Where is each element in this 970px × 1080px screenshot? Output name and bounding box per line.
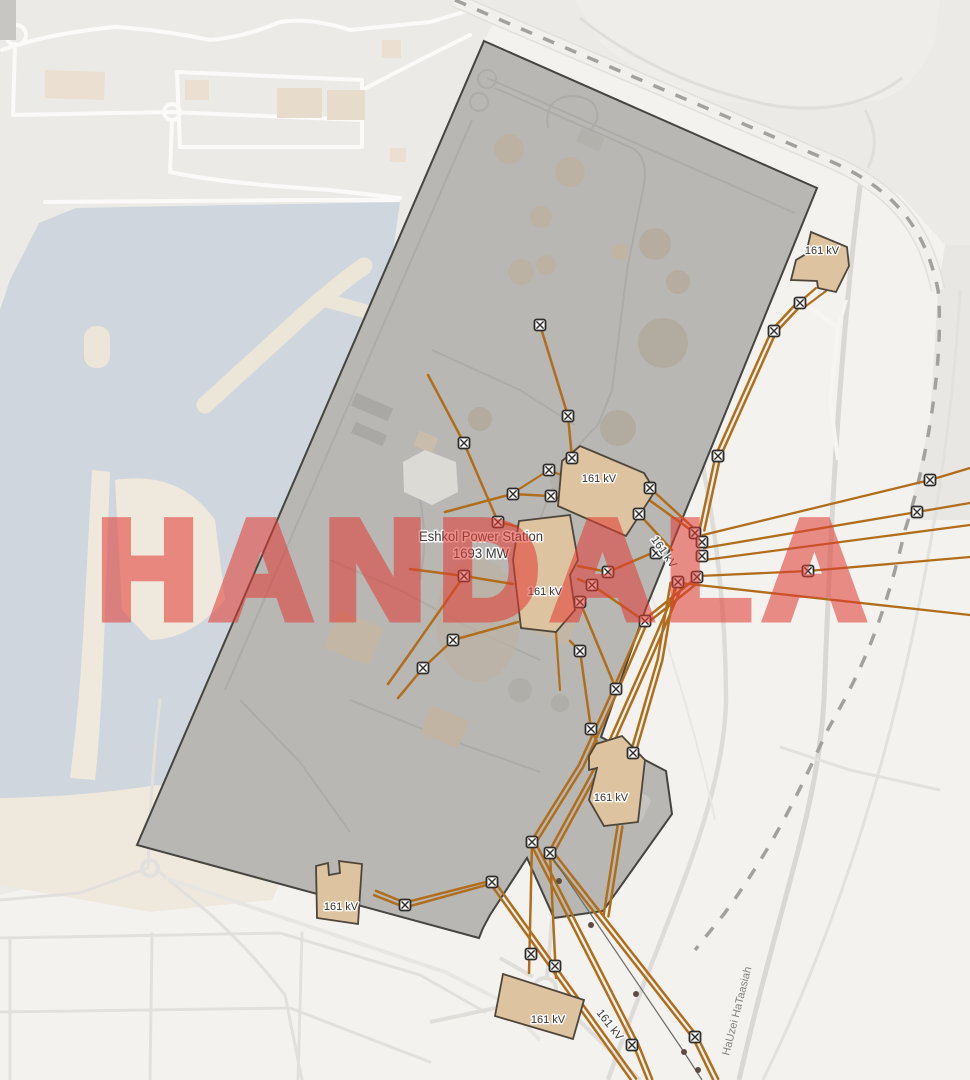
svg-text:HANDALA: HANDALA xyxy=(97,491,865,648)
svg-text:161 kV: 161 kV xyxy=(805,245,840,257)
svg-text:161 kV: 161 kV xyxy=(582,473,617,485)
svg-text:161 kV: 161 kV xyxy=(531,1014,566,1026)
svg-text:161 kV: 161 kV xyxy=(324,901,359,913)
svg-text:161 kV: 161 kV xyxy=(594,792,629,804)
